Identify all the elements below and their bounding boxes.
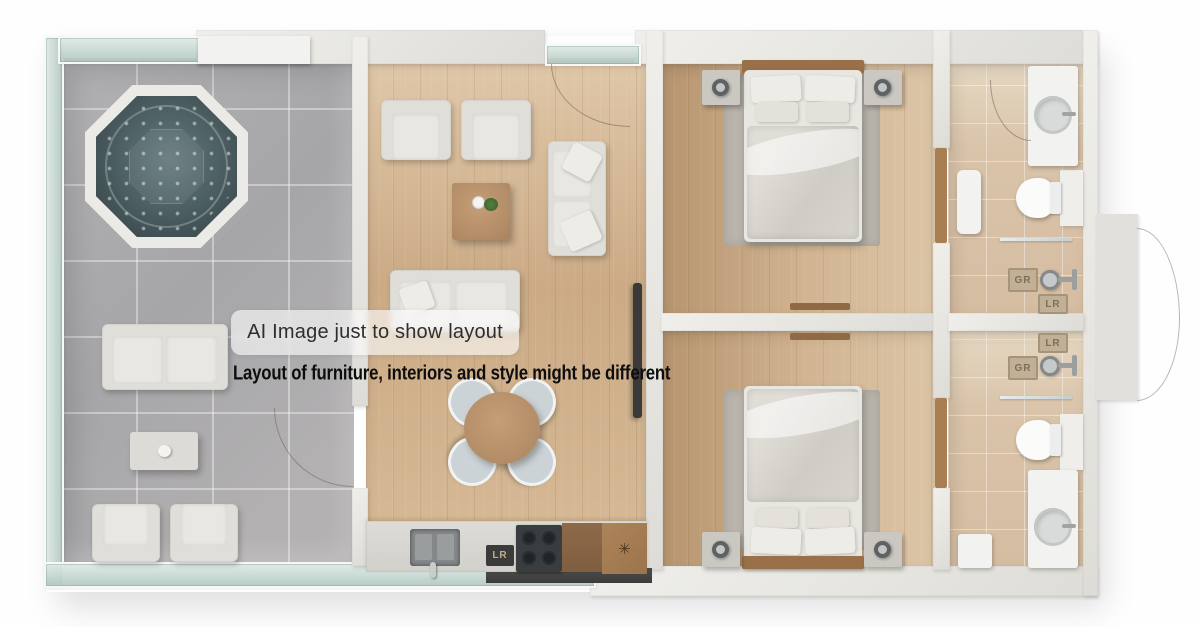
coffee-cup bbox=[472, 196, 485, 209]
patio-armchair-right bbox=[170, 504, 238, 562]
bed-pillow-small bbox=[756, 102, 798, 122]
armchair-cushion bbox=[392, 114, 440, 160]
lamp-icon bbox=[874, 79, 891, 96]
ai-disclaimer-badge: AI Image just to show layout bbox=[231, 310, 519, 355]
bed-pillow bbox=[804, 527, 855, 556]
bath-mat-label: GR bbox=[1015, 363, 1032, 374]
living-armchair-left bbox=[381, 100, 451, 160]
bed-pillow bbox=[804, 75, 855, 104]
bath-bottom-toilet-stub bbox=[1060, 414, 1083, 470]
tv bbox=[633, 283, 642, 418]
shower-arm-icon bbox=[1072, 269, 1077, 290]
bedroom-bottom-nightstand-left bbox=[702, 532, 740, 567]
bedroom-top-foot-bench bbox=[790, 303, 850, 310]
bed-pillow bbox=[750, 527, 801, 556]
cooktop bbox=[516, 525, 562, 572]
bedroom-top-nightstand-left bbox=[702, 70, 740, 105]
porch-door-swing-arc-bottom bbox=[1137, 318, 1180, 401]
bed-pillow-small bbox=[807, 508, 849, 528]
bath-top-toilet-stub bbox=[1060, 170, 1083, 226]
bed-pillow bbox=[750, 75, 801, 104]
faucet-icon bbox=[1062, 112, 1076, 116]
faucet-icon bbox=[430, 562, 436, 578]
bath-top-mat-gr: GR bbox=[1008, 268, 1038, 292]
kitchen-appliance-label: LR bbox=[492, 550, 507, 561]
lamp-icon bbox=[712, 541, 729, 558]
burner-icon bbox=[542, 531, 556, 545]
armchair-cushion bbox=[181, 504, 227, 546]
layout-disclaimer-text: Layout of furniture, interiors and style… bbox=[233, 361, 670, 385]
hot-tub-seat bbox=[129, 129, 204, 204]
bath-mat-label: LR bbox=[1045, 338, 1060, 349]
loveseat-cushion bbox=[112, 336, 163, 384]
badge-text: AI Image just to show layout bbox=[247, 321, 503, 344]
living-sofa-right bbox=[548, 141, 606, 256]
bath-bottom-toilet-tank bbox=[1050, 424, 1061, 456]
lamp-icon bbox=[712, 79, 729, 96]
living-bedroom-wall bbox=[646, 30, 663, 570]
burner-icon bbox=[542, 551, 556, 565]
armchair-cushion bbox=[103, 504, 149, 546]
lamp-icon bbox=[874, 541, 891, 558]
bath-bottom-cabinet bbox=[958, 534, 992, 568]
bedroom-top-nightstand-right bbox=[864, 70, 902, 105]
armchair-cushion bbox=[472, 114, 520, 160]
counter-wood-dark bbox=[562, 523, 602, 572]
bath-mat-label: LR bbox=[1045, 299, 1060, 310]
loveseat-cushion bbox=[166, 336, 217, 384]
knife-block-mark: ✳ bbox=[618, 540, 631, 558]
sink-basin bbox=[415, 534, 432, 560]
living-coffee-table bbox=[452, 183, 510, 240]
hot-tub bbox=[85, 85, 248, 248]
patio-wall-shelf bbox=[198, 36, 310, 64]
burner-icon bbox=[522, 551, 536, 565]
left-glass-wall bbox=[44, 36, 64, 586]
bedroom-bath-wall-bottom bbox=[933, 488, 950, 570]
bed-pillow-small bbox=[756, 508, 798, 528]
patio-top-glass bbox=[58, 36, 202, 64]
entry-porch-slab bbox=[1096, 214, 1138, 400]
bath-top-tub bbox=[957, 170, 981, 234]
bed-duvet bbox=[747, 126, 859, 239]
sink-basin bbox=[437, 534, 454, 560]
bath-bottom-mat-lr: LR bbox=[1038, 333, 1068, 353]
kitchen-sink bbox=[410, 529, 460, 566]
living-armchair-right bbox=[461, 100, 531, 160]
bed-duvet bbox=[747, 389, 859, 502]
bath-bottom-vanity bbox=[1028, 470, 1078, 568]
bedroom-bottom-headboard bbox=[742, 556, 864, 569]
bath-top-mat-lr: LR bbox=[1038, 294, 1068, 314]
plant-icon bbox=[484, 198, 498, 211]
shower-head-icon bbox=[1040, 356, 1060, 376]
shower-head-icon bbox=[1040, 270, 1060, 290]
patio-table-decor bbox=[158, 445, 171, 457]
bath-bottom-mat-gr: GR bbox=[1008, 356, 1038, 380]
bedroom-divider-wall bbox=[661, 313, 935, 331]
faucet-icon bbox=[1062, 524, 1076, 528]
bath-bottom-shower-screen bbox=[1000, 396, 1072, 399]
bath-top-door-leaf bbox=[935, 148, 947, 243]
shower-arm-icon bbox=[1072, 355, 1077, 376]
kitchen-appliance: LR bbox=[486, 545, 514, 566]
bath-top-vanity bbox=[1028, 66, 1078, 166]
bedroom-bath-wall-top bbox=[933, 30, 950, 148]
patio-armchair-left bbox=[92, 504, 160, 562]
porch-door-swing-arc-top bbox=[1137, 228, 1180, 319]
patio-coffee-table bbox=[130, 432, 198, 470]
bath-mat-label: GR bbox=[1015, 275, 1032, 286]
bed-pillow-small bbox=[807, 102, 849, 122]
bath-bottom-door-leaf bbox=[935, 398, 947, 488]
bedroom-bottom-bed bbox=[744, 386, 862, 562]
floor-plan-scene: LR ✳ bbox=[0, 0, 1200, 627]
patio-loveseat bbox=[102, 324, 228, 390]
living-entry-glass-door bbox=[545, 44, 641, 66]
top-wall-right-segment bbox=[635, 30, 1097, 64]
dining-table bbox=[464, 392, 540, 464]
bedroom-bottom-nightstand-right bbox=[864, 532, 902, 567]
bedroom-top-bed bbox=[744, 70, 862, 242]
bedroom-bottom-foot-bench bbox=[790, 333, 850, 340]
bottom-wall bbox=[590, 566, 1097, 596]
bath-top-toilet-tank bbox=[1050, 182, 1061, 214]
kitchen-counter: LR ✳ bbox=[366, 521, 647, 572]
bath-top-shower-screen bbox=[1000, 238, 1072, 241]
cutting-board: ✳ bbox=[602, 523, 647, 574]
burner-icon bbox=[522, 531, 536, 545]
bath-divider-wall bbox=[948, 313, 1084, 331]
